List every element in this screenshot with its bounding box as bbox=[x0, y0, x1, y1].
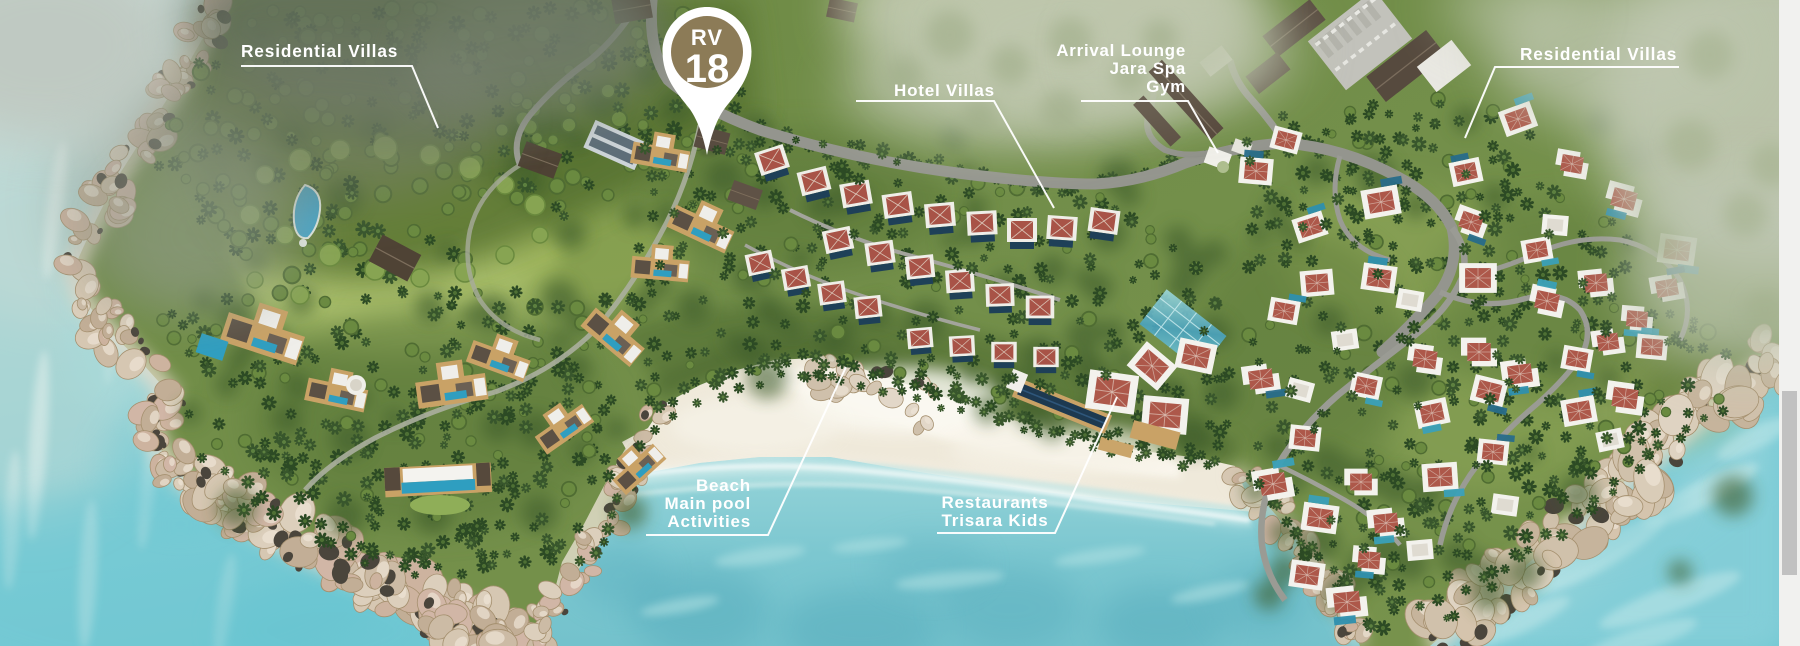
svg-text:Arrival Lounge: Arrival Lounge bbox=[1056, 41, 1186, 60]
svg-text:Hotel Villas: Hotel Villas bbox=[894, 81, 995, 100]
svg-text:Trisara Kids: Trisara Kids bbox=[942, 511, 1049, 530]
svg-text:Main pool: Main pool bbox=[664, 494, 751, 513]
svg-text:Jara Spa: Jara Spa bbox=[1110, 59, 1186, 78]
svg-text:Activities: Activities bbox=[667, 512, 751, 531]
svg-text:Gym: Gym bbox=[1146, 77, 1186, 96]
svg-text:Residential Villas: Residential Villas bbox=[241, 41, 398, 61]
svg-text:18: 18 bbox=[685, 47, 730, 91]
svg-text:Residential Villas: Residential Villas bbox=[1520, 44, 1677, 64]
svg-text:Beach: Beach bbox=[696, 476, 751, 495]
svg-text:Restaurants: Restaurants bbox=[941, 493, 1048, 512]
